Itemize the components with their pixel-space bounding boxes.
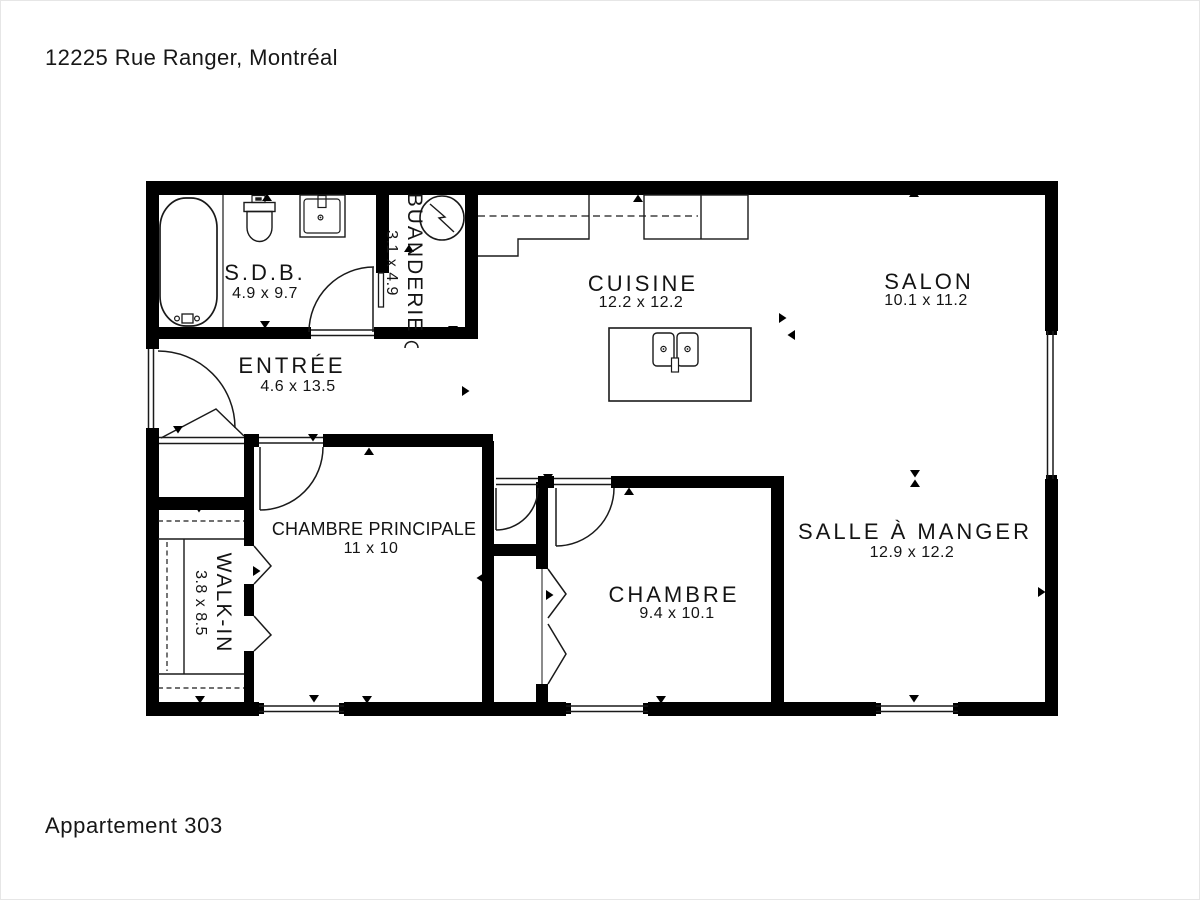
bifold-door [254, 546, 271, 584]
room-label-sdb: S.D.B. [224, 260, 306, 285]
room-dims-sdb: 4.9 x 9.7 [232, 285, 298, 302]
kitchen-island-sink-icon [653, 333, 698, 372]
linen-closet-door-arc [496, 488, 538, 530]
kitchen-appliances [644, 195, 748, 239]
room-dims-salon: 10.1 x 11.2 [884, 292, 967, 309]
room-label-salle-a-manger: SALLE À MANGER [798, 519, 1032, 544]
entry-closet-frame [159, 438, 244, 444]
vanity-sink-icon [300, 195, 345, 237]
room-dims-buanderie: 3.1 x 4.9 [383, 230, 400, 296]
floorplan-page: 12225 Rue Ranger, Montréal [0, 0, 1200, 900]
tub-faucet [182, 314, 193, 323]
kitchen-counter [478, 195, 589, 256]
window [1048, 331, 1054, 479]
room-dims-entree: 4.6 x 13.5 [260, 378, 335, 395]
room-labels: S.D.B. 4.9 x 9.7 BUANDERIE 3.1 x 4.9 CUI… [192, 193, 1032, 654]
window [876, 706, 958, 712]
room-dims-cuisine: 12.2 x 12.2 [599, 294, 684, 311]
chambre-door-arc [556, 488, 614, 546]
window [566, 706, 648, 712]
bathtub-icon [160, 198, 217, 326]
kitchen-island [609, 328, 751, 401]
floorplan-drawing: S.D.B. 4.9 x 9.7 BUANDERIE 3.1 x 4.9 CUI… [1, 1, 1200, 900]
chambre-door-frame [554, 479, 611, 485]
room-label-walk-in: WALK-IN [212, 553, 235, 654]
buanderie-sliding-door [379, 273, 384, 307]
window [259, 706, 344, 712]
bifold-door [254, 616, 271, 651]
toilet-icon [244, 196, 275, 242]
door-swing-mark [405, 342, 418, 348]
entry-door-frame [149, 349, 154, 428]
room-label-chambre-principale: CHAMBRE PRINCIPALE [272, 519, 476, 539]
sdb-door-frame [311, 330, 374, 336]
room-label-chambre: CHAMBRE [608, 582, 739, 607]
entry-closet-doors [161, 409, 244, 438]
room-label-cuisine: CUISINE [588, 271, 698, 296]
unit-label: Appartement 303 [45, 813, 223, 839]
room-label-salon: SALON [884, 269, 974, 294]
bifold-door [548, 624, 566, 684]
room-dims-chambre: 9.4 x 10.1 [639, 605, 714, 622]
room-label-buanderie: BUANDERIE [403, 193, 426, 334]
linen-closet-door-frame [496, 479, 538, 485]
room-dims-salle-a-manger: 12.9 x 12.2 [870, 544, 955, 561]
room-dims-walk-in: 3.8 x 8.5 [192, 570, 209, 636]
sdb-door-arc [309, 267, 374, 332]
cp-door-arc [260, 447, 323, 510]
room-dims-chambre-principale: 11 x 10 [344, 540, 399, 557]
room-label-entree: ENTRÉE [238, 353, 345, 378]
